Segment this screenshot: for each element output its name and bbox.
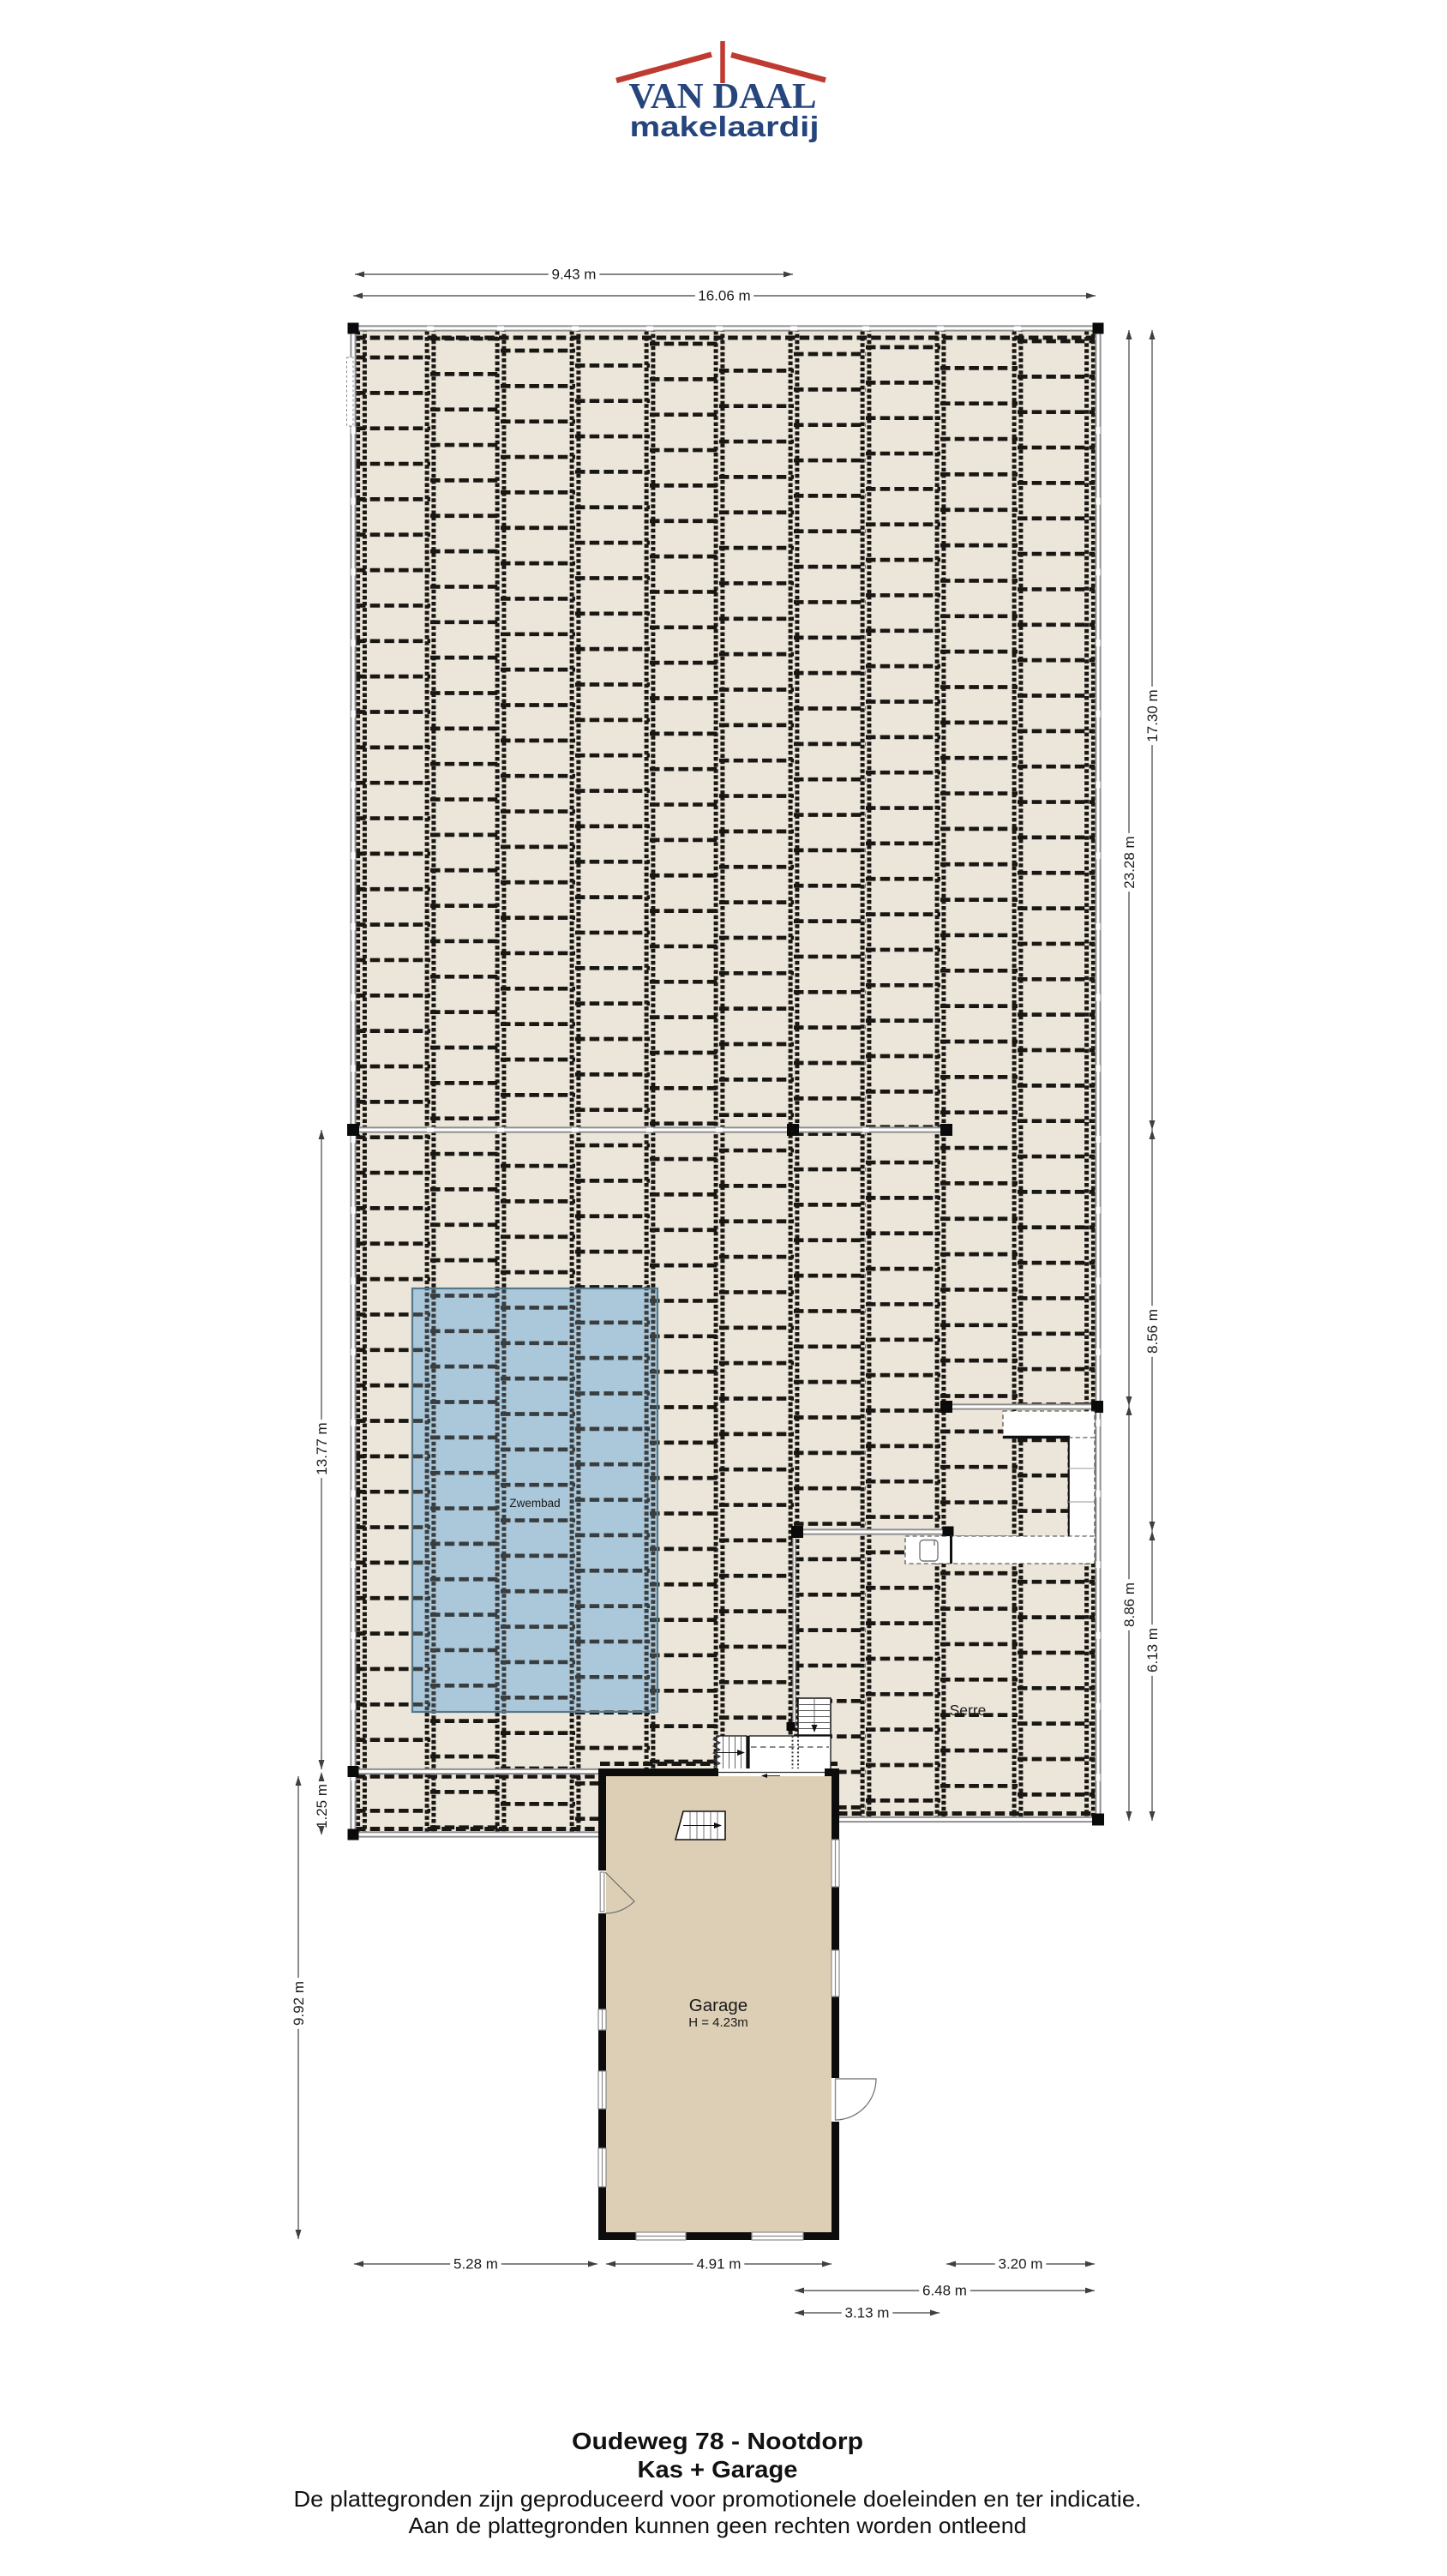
svg-text:Oudeweg 78 - Nootdorp: Oudeweg 78 - Nootdorp bbox=[572, 2428, 863, 2454]
svg-text:23.28 m: 23.28 m bbox=[1121, 836, 1138, 888]
svg-text:13.77 m: 13.77 m bbox=[314, 1422, 330, 1474]
svg-text:Zwembad: Zwembad bbox=[509, 1497, 560, 1510]
svg-text:8.86 m: 8.86 m bbox=[1121, 1582, 1138, 1627]
svg-text:9.92 m: 9.92 m bbox=[291, 1981, 307, 2026]
svg-text:9.43 m: 9.43 m bbox=[552, 267, 597, 283]
svg-text:Aan de plattegronden kunnen ge: Aan de plattegronden kunnen geen rechten… bbox=[409, 2513, 1027, 2538]
svg-text:3.20 m: 3.20 m bbox=[999, 2256, 1043, 2273]
svg-text:makelaardij: makelaardij bbox=[630, 111, 820, 142]
svg-text:Garage: Garage bbox=[689, 1996, 748, 2015]
svg-text:5.28 m: 5.28 m bbox=[453, 2256, 498, 2273]
svg-text:8.56 m: 8.56 m bbox=[1144, 1309, 1161, 1354]
svg-text:1.25 m: 1.25 m bbox=[314, 1784, 330, 1828]
svg-text:3.13 m: 3.13 m bbox=[845, 2305, 890, 2321]
svg-text:Kas + Garage: Kas + Garage bbox=[638, 2456, 798, 2483]
svg-text:4.91 m: 4.91 m bbox=[697, 2256, 742, 2273]
svg-text:H = 4.23m: H = 4.23m bbox=[688, 2015, 748, 2030]
svg-text:6.48 m: 6.48 m bbox=[922, 2283, 967, 2299]
svg-text:16.06 m: 16.06 m bbox=[698, 288, 750, 304]
svg-text:De plattegronden zijn geproduc: De plattegronden zijn geproduceerd voor … bbox=[294, 2486, 1142, 2512]
svg-text:6.13 m: 6.13 m bbox=[1144, 1628, 1161, 1672]
svg-text:17.30 m: 17.30 m bbox=[1144, 689, 1161, 742]
